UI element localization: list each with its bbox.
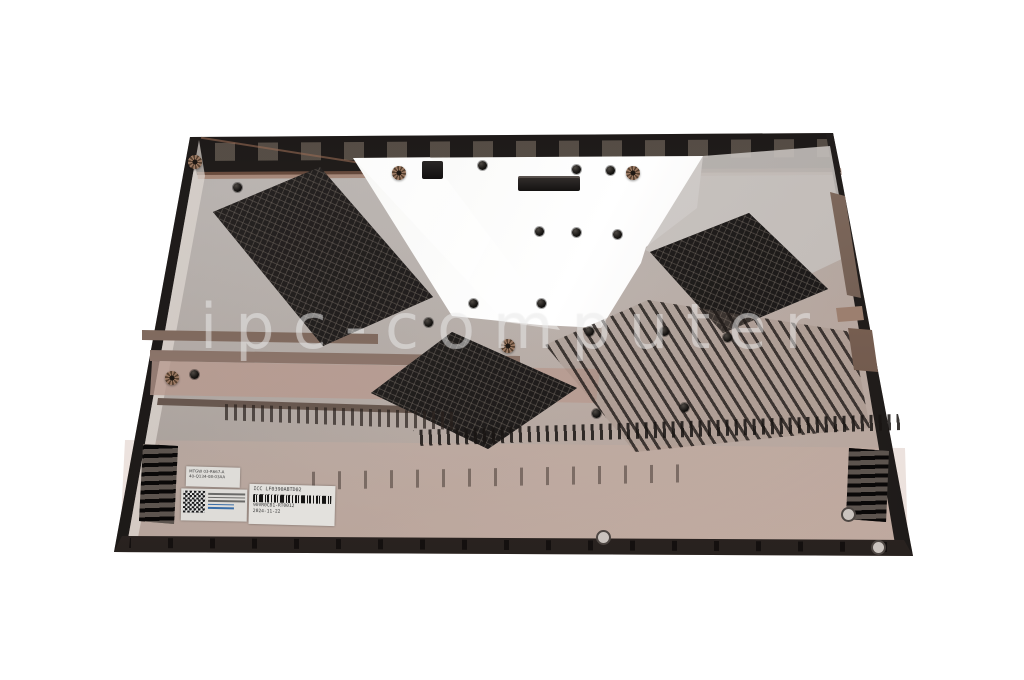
splined-standoff [392,166,406,180]
screw [190,370,199,379]
screw [606,166,615,175]
screw-hole [841,507,856,522]
screw [535,227,544,236]
screw [613,230,622,239]
screw [478,161,487,170]
screw [680,403,689,412]
splined-standoff [626,166,640,180]
splined-standoff [165,371,179,385]
screw [572,165,581,174]
screw [572,228,581,237]
qr-sticker [181,488,248,521]
code-sticker-line2: 40-Q134-08-03AA [189,473,237,479]
screw [233,183,242,192]
watermark-text: ipc-computer [200,290,920,363]
corner-bevel-line [201,137,369,166]
screw-hole [596,530,611,545]
part-number-sticker: ICC LF0390ABTD02 90VR0CB1-RT0012 2024-11… [248,484,335,526]
screw-hole [871,540,886,555]
product-photo: MTGW 03-R667-A 40-Q134-08-03AA ICC LF039… [0,0,1024,680]
qr-label-text-lines [208,491,245,520]
splined-standoff [188,155,202,169]
code-sticker: MTGW 03-R667-A 40-Q134-08-03AA [186,466,241,487]
rubber-block [422,161,443,179]
connector-socket [518,176,580,191]
qr-code [183,490,205,512]
part-date: 2024-11-22 [253,509,331,517]
screw [592,409,601,418]
